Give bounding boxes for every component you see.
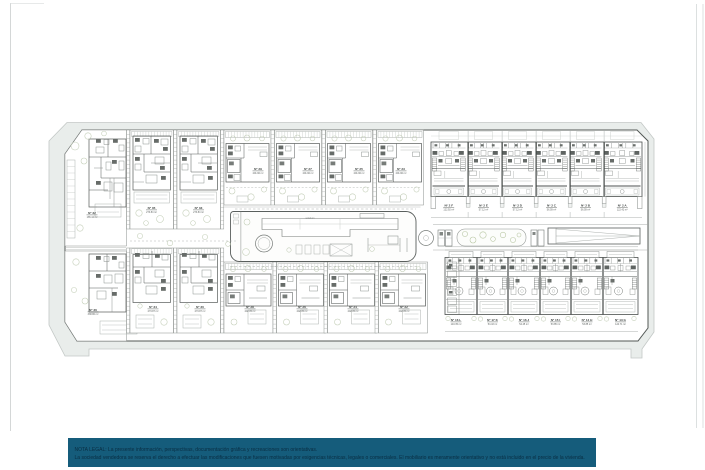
svg-text:Nº 32: Nº 32 <box>88 211 96 215</box>
svg-text:Nº 2 F: Nº 2 F <box>444 204 453 208</box>
svg-text:273.87 m²: 273.87 m² <box>148 310 159 313</box>
svg-text:57.12 m²: 57.12 m² <box>479 209 489 212</box>
svg-text:Nº 34: Nº 34 <box>149 305 157 309</box>
svg-text:Nº 35: Nº 35 <box>148 206 156 210</box>
svg-text:53.85 m²: 53.85 m² <box>582 323 592 326</box>
svg-text:201.90 m²: 201.90 m² <box>354 172 365 175</box>
svg-text:Nº 16 J: Nº 16 J <box>519 318 530 322</box>
svg-text:165.44 m²: 165.44 m² <box>87 216 98 219</box>
svg-text:NOTA LEGAL: La presente inform: NOTA LEGAL: La presente información, per… <box>75 447 318 453</box>
svg-text:273.84 m²: 273.84 m² <box>193 211 204 214</box>
svg-text:Nº 15 I: Nº 15 I <box>551 318 561 322</box>
svg-text:Nº 30: Nº 30 <box>196 305 204 309</box>
svg-text:53.85 m²: 53.85 m² <box>551 323 561 326</box>
svg-text:202.05 m²: 202.05 m² <box>348 310 359 313</box>
svg-text:202.05 m²: 202.05 m² <box>297 310 308 313</box>
svg-text:143.35 m²: 143.35 m² <box>451 323 462 326</box>
svg-text:54.43 m²: 54.43 m² <box>488 323 498 326</box>
svg-text:54.45 m²: 54.45 m² <box>519 323 529 326</box>
svg-text:273.87 m²: 273.87 m² <box>195 310 206 313</box>
svg-text:Nº 29: Nº 29 <box>254 167 262 171</box>
svg-text:273.84 m²: 273.84 m² <box>146 211 157 214</box>
svg-text:Nº 23: Nº 23 <box>397 167 405 171</box>
svg-text:Nº 2 E: Nº 2 E <box>479 204 488 208</box>
svg-text:Nº 2 B: Nº 2 B <box>581 204 591 208</box>
svg-text:Nº 25: Nº 25 <box>355 167 363 171</box>
svg-text:Nº 13 G: Nº 13 G <box>615 318 627 322</box>
svg-text:202.05 m²: 202.05 m² <box>399 310 410 313</box>
svg-text:Nº 14 H: Nº 14 H <box>582 318 594 322</box>
svg-text:202.05 m²: 202.05 m² <box>245 310 256 313</box>
svg-text:122.42 m²: 122.42 m² <box>617 209 628 212</box>
svg-text:Nº 17 K: Nº 17 K <box>487 318 499 322</box>
svg-text:Nº 24: Nº 24 <box>349 305 357 309</box>
svg-text:201.90 m²: 201.90 m² <box>303 172 314 175</box>
svg-text:solarium: solarium <box>305 217 314 220</box>
svg-text:57.12 m²: 57.12 m² <box>513 209 523 212</box>
svg-text:56.59 m²: 56.59 m² <box>581 209 591 212</box>
svg-text:Nº 16 L: Nº 16 L <box>451 318 462 322</box>
svg-text:124.71 m²: 124.71 m² <box>615 323 626 326</box>
svg-text:La sociedad vendedora se reser: La sociedad vendedora se reserva el dere… <box>75 455 585 461</box>
svg-text:Nº 36: Nº 36 <box>89 308 97 312</box>
svg-text:Nº 2 A: Nº 2 A <box>618 204 628 208</box>
svg-text:201.90 m²: 201.90 m² <box>253 172 264 175</box>
svg-text:56.59 m²: 56.59 m² <box>547 209 557 212</box>
svg-text:Nº 2 D: Nº 2 D <box>513 204 523 208</box>
svg-text:122.92 m²: 122.92 m² <box>443 209 454 212</box>
svg-text:Nº 33: Nº 33 <box>195 206 203 210</box>
svg-text:Nº 2 C: Nº 2 C <box>547 204 557 208</box>
svg-text:Nº 26: Nº 26 <box>298 305 306 309</box>
svg-text:Nº 27: Nº 27 <box>304 167 312 171</box>
svg-text:338.80 m²: 338.80 m² <box>88 313 99 316</box>
svg-text:Nº 28: Nº 28 <box>246 305 254 309</box>
svg-text:Nº 22: Nº 22 <box>400 305 408 309</box>
svg-text:201.90 m²: 201.90 m² <box>396 172 407 175</box>
